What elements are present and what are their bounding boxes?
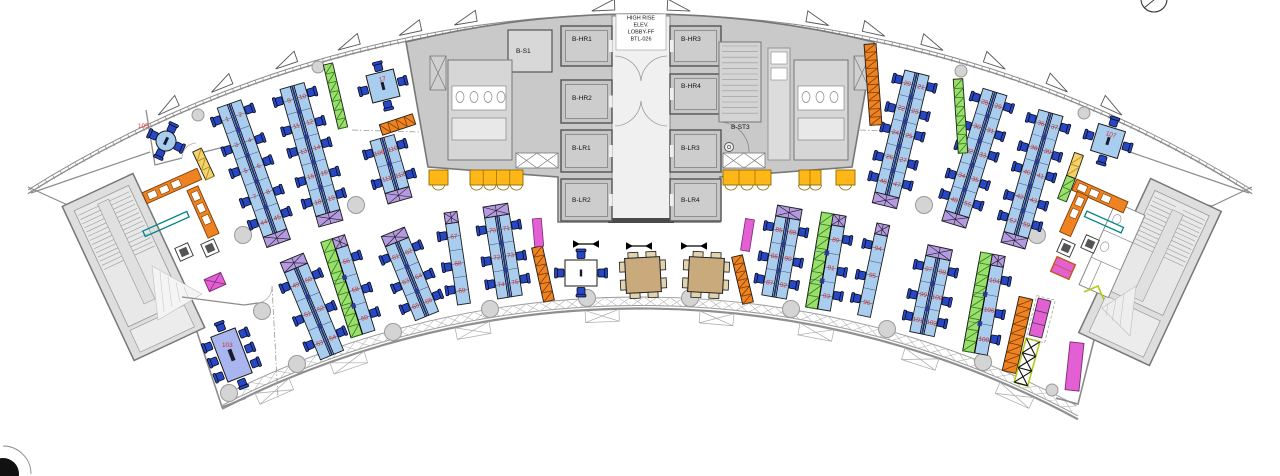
svg-text:B-LR1: B-LR1 [572, 145, 591, 152]
svg-text:LOBBY-FF: LOBBY-FF [628, 30, 655, 36]
svg-text:105: 105 [138, 123, 149, 130]
svg-text:HIGH RISE: HIGH RISE [627, 16, 655, 22]
svg-text:BTL-026: BTL-026 [630, 37, 651, 43]
svg-text:B-LR2: B-LR2 [572, 197, 591, 204]
svg-text:B-S1: B-S1 [516, 48, 531, 55]
svg-text:B-HR2: B-HR2 [572, 95, 592, 102]
svg-text:103: 103 [222, 342, 233, 349]
svg-text:B-HR4: B-HR4 [681, 83, 701, 90]
svg-text:B-LR3: B-LR3 [681, 145, 700, 152]
svg-text:B-LR4: B-LR4 [681, 197, 700, 204]
svg-text:B-HR3: B-HR3 [681, 36, 701, 43]
svg-text:B-HR1: B-HR1 [572, 36, 592, 43]
svg-text:B-ST3: B-ST3 [731, 124, 750, 131]
svg-text:ELEV.: ELEV. [633, 23, 649, 29]
